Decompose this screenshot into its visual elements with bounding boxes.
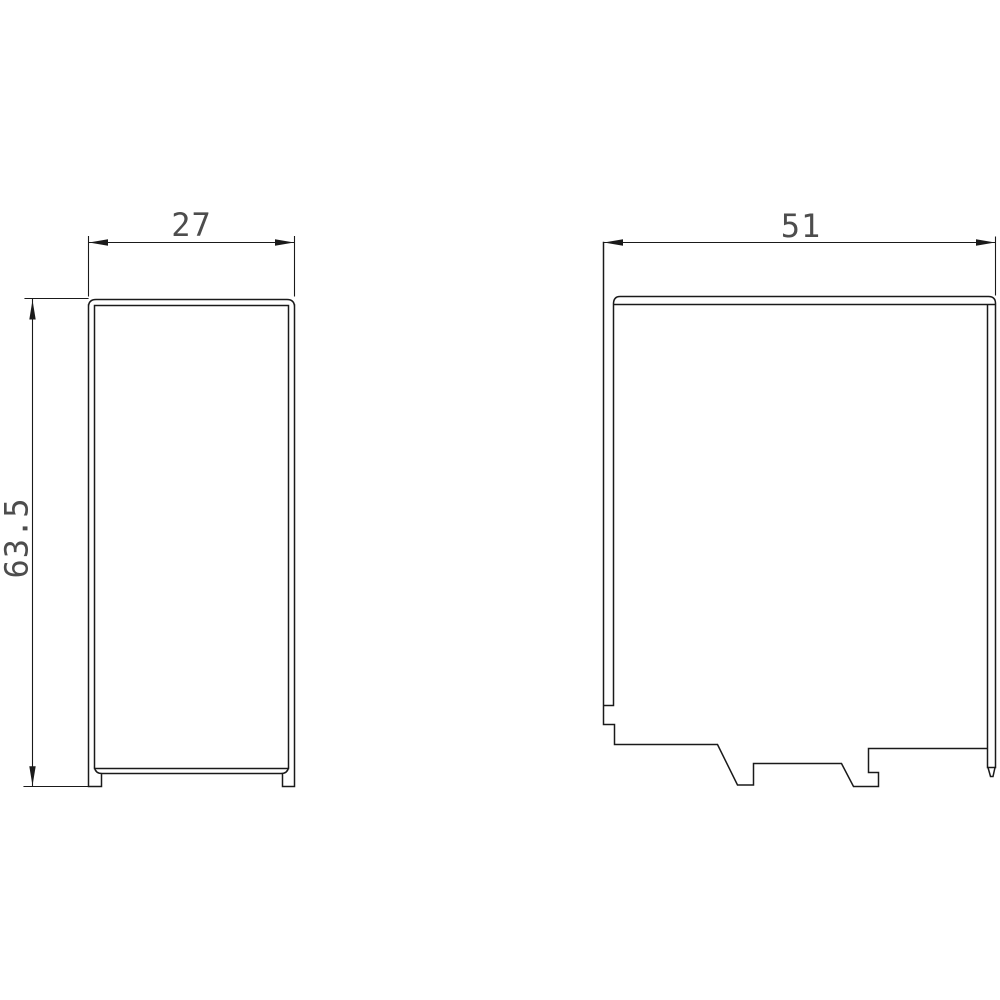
arrowhead-left-icon <box>604 239 623 245</box>
arrowhead-right-icon <box>976 239 995 245</box>
dimensional-drawing: 27 63.5 51 <box>0 0 1000 1000</box>
front-view <box>89 300 295 787</box>
front-width-label: 27 <box>171 206 212 244</box>
arrowhead-up-icon <box>29 300 35 320</box>
front-view-body-outline <box>89 300 295 787</box>
front-height-dimension: 63.5 <box>0 299 100 787</box>
side-depth-label: 51 <box>781 207 822 245</box>
arrowhead-down-icon <box>29 766 35 786</box>
side-view <box>604 243 996 787</box>
side-view-body-outline <box>604 243 996 787</box>
technical-drawing-canvas: 27 63.5 51 <box>0 0 1000 1000</box>
arrowhead-left-icon <box>89 239 108 245</box>
front-width-dimension: 27 <box>89 206 295 296</box>
arrowhead-right-icon <box>275 239 294 245</box>
front-width-dimension-lines <box>89 237 295 297</box>
side-depth-dimension: 51 <box>604 207 996 295</box>
side-depth-dimension-lines <box>604 237 996 295</box>
front-height-label: 63.5 <box>0 497 36 578</box>
